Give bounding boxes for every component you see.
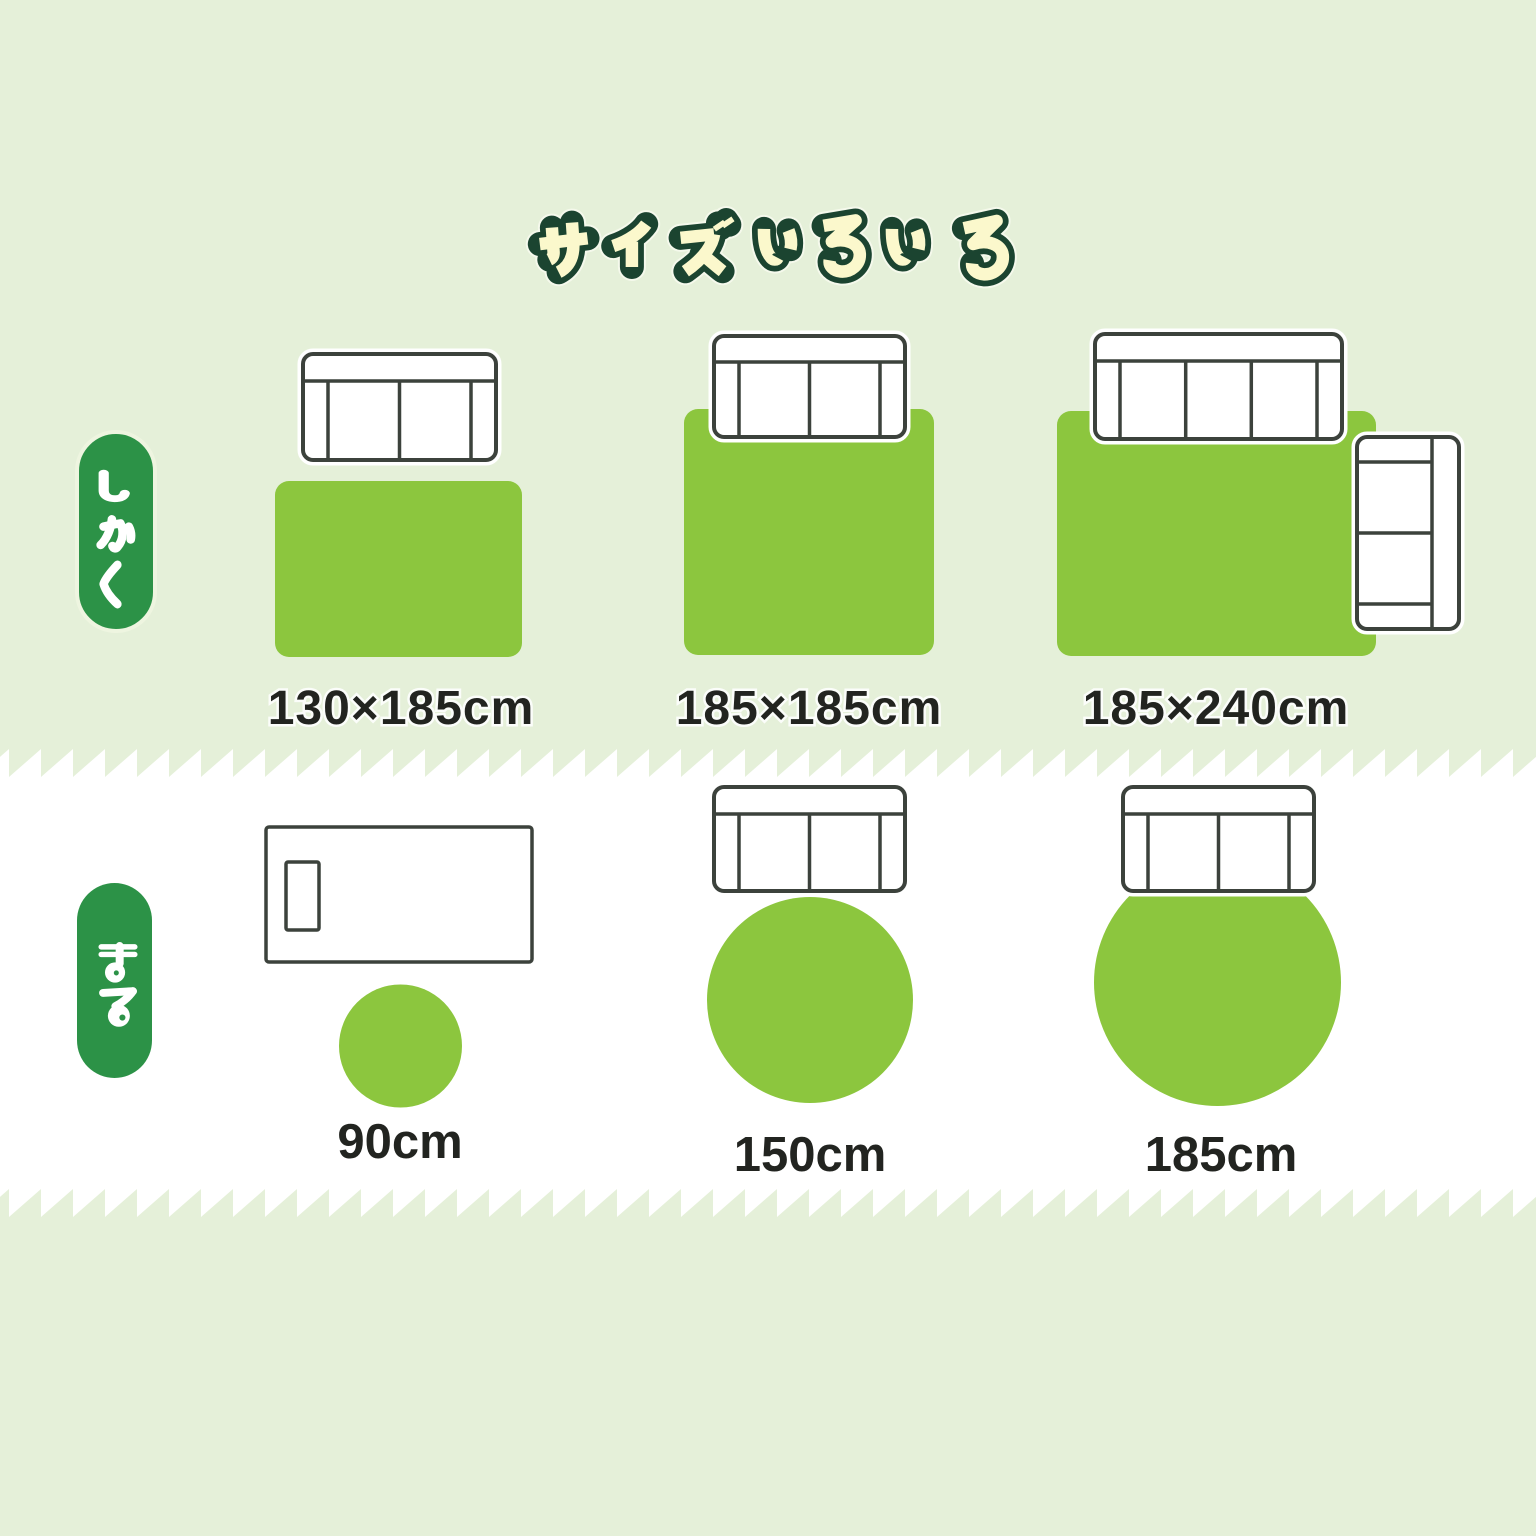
svg-text:185cm: 185cm — [1145, 1128, 1298, 1182]
svg-text:90cm: 90cm — [337, 1115, 462, 1169]
svg-text:185×240cm: 185×240cm — [1083, 682, 1350, 735]
svg-text:150cm: 150cm — [734, 1128, 887, 1182]
svg-text:130×185cm: 130×185cm — [268, 682, 535, 735]
svg-text:185×185cm: 185×185cm — [676, 682, 943, 735]
